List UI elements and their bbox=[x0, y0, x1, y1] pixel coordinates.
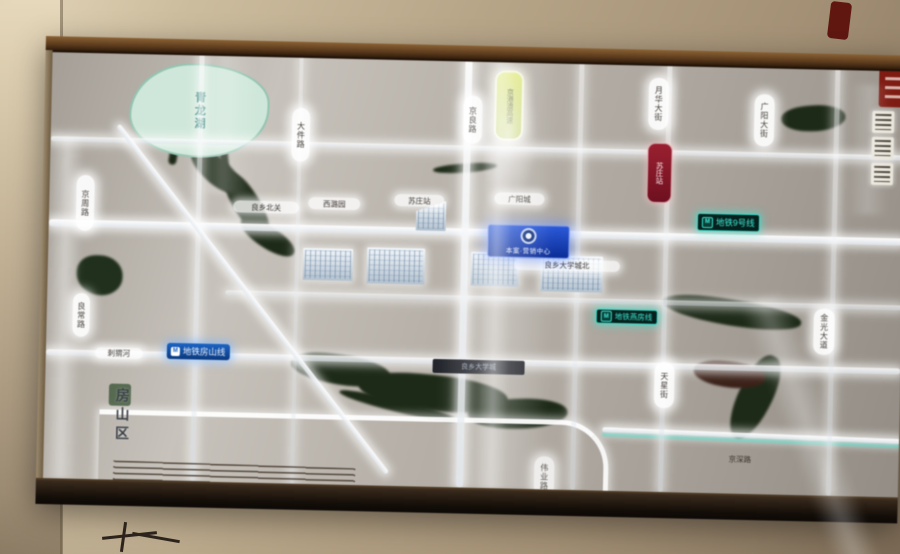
metro-line-bar: M 地铁燕房线 bbox=[596, 309, 658, 325]
highway-marker-pill: 京港澳高速 bbox=[494, 70, 525, 141]
road-label: 良乡大学城北 bbox=[514, 259, 620, 272]
road bbox=[225, 290, 900, 310]
road-name-pill: 金光大道 bbox=[813, 308, 835, 354]
foreground-plant-sketch bbox=[92, 520, 192, 554]
building-cluster bbox=[303, 248, 354, 281]
illuminated-map-board: 青龙湖 京周路 良常路 bbox=[35, 36, 900, 521]
metro-station-red-pill: 苏庄站 bbox=[646, 143, 672, 204]
metro-icon: M bbox=[601, 311, 612, 322]
building-cluster bbox=[366, 247, 425, 284]
river-area bbox=[661, 290, 803, 336]
district-label: 房山区 bbox=[112, 388, 133, 445]
project-location-plaque: 本案·营销中心 bbox=[487, 224, 570, 259]
road-label: 广阳城 bbox=[494, 192, 544, 205]
road-name-pill: 大件路 bbox=[291, 108, 310, 162]
map-surface: 青龙湖 京周路 良常路 bbox=[43, 50, 900, 497]
road-name-pill: 广阳大街 bbox=[754, 94, 775, 146]
road-label: 苏庄站 bbox=[394, 194, 444, 207]
road-name-pill: 天星街 bbox=[654, 362, 675, 408]
edge-placard bbox=[871, 137, 893, 159]
road-label: 刺猬河 bbox=[95, 347, 143, 359]
campus-plate-label: 良乡大学城 bbox=[432, 359, 524, 375]
road bbox=[826, 68, 841, 496]
metro-icon: M bbox=[702, 216, 713, 227]
edge-placard bbox=[872, 111, 894, 133]
road bbox=[49, 219, 900, 245]
metro-icon: M bbox=[171, 346, 180, 355]
photo-of-backlit-map-display: 青龙湖 京周路 良常路 bbox=[0, 0, 900, 554]
red-wall-sign bbox=[827, 1, 852, 40]
road-label: 良乡北关 bbox=[233, 200, 299, 213]
road-name-pill: 月华大街 bbox=[648, 78, 669, 130]
edge-placard bbox=[871, 163, 893, 185]
developer-logo-icon bbox=[520, 228, 536, 244]
red-edge-sign bbox=[879, 69, 900, 108]
road-name-pill: 京周路 bbox=[76, 175, 95, 231]
metro-line-bar: M 地铁9号线 bbox=[697, 213, 760, 232]
project-name: 本案·营销中心 bbox=[506, 244, 551, 255]
road-name-pill: 京良路 bbox=[463, 95, 483, 143]
park-area bbox=[76, 255, 123, 296]
road-name-pill: 良常路 bbox=[72, 293, 90, 337]
road-label: 京深路 bbox=[728, 454, 751, 466]
road-label: 西潞园 bbox=[308, 197, 360, 210]
metro-line-bar: M 地铁房山线 bbox=[167, 343, 230, 360]
